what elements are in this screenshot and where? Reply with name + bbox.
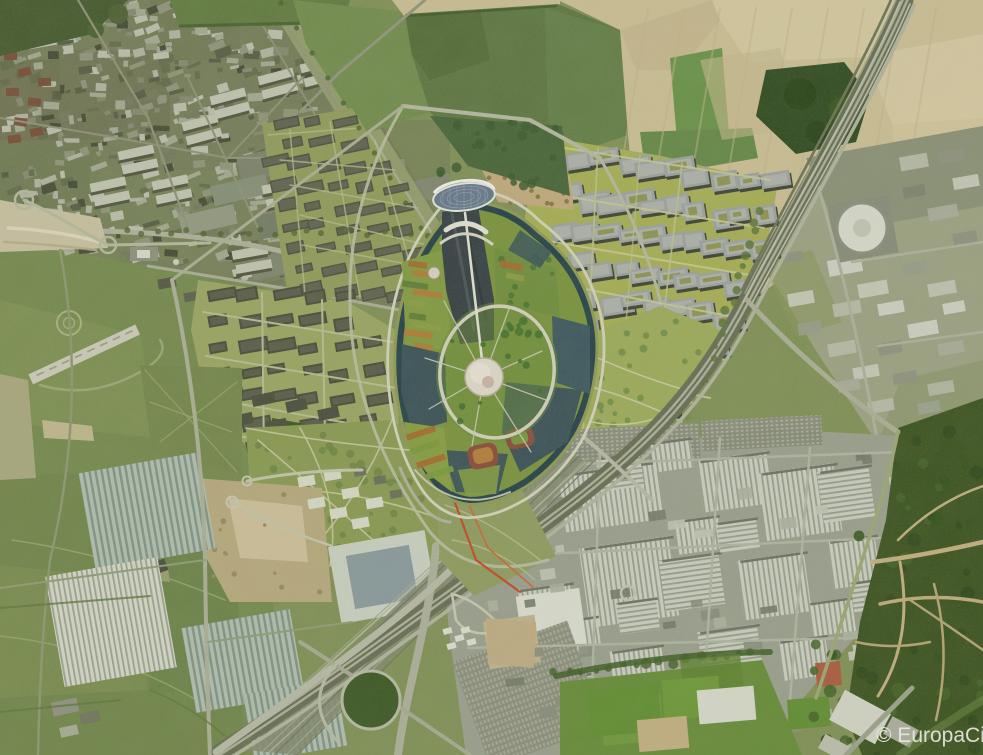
svg-text:© EuropaCi: © EuropaCi <box>876 724 983 747</box>
